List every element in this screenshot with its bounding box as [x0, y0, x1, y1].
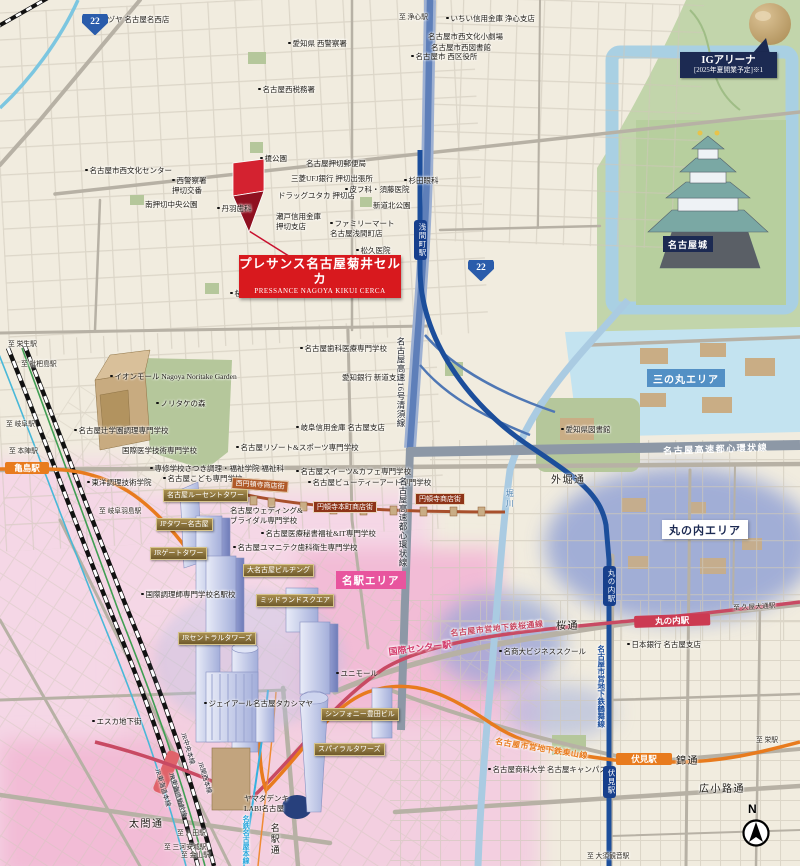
dest-hisaya-odori: 至 久屋大通駅	[733, 603, 776, 614]
rail-chuo: JR中央本線	[178, 732, 196, 766]
poi-seto-shinkin: 瀬戸信用金庫 押切支店	[276, 212, 321, 232]
nagoya-castle-label: 名古屋城	[663, 236, 713, 252]
dest-kanayama: 至 金山駅	[181, 852, 210, 861]
poi-intl-medical-college: 国際医学技術専門学校	[122, 446, 197, 456]
line-sakuradori: 名古屋市営地下鉄桜通線	[450, 619, 544, 639]
line-tsurumai-v: 名古屋市営地下鉄鶴舞線	[596, 645, 606, 728]
area-label-meieki: 名駅エリア	[336, 571, 406, 589]
poi-jr-takashimaya: ジェイアール名古屋タカシマヤ	[204, 699, 313, 709]
poi-nagoya-univ-commerce: 名古屋商科大学 名古屋キャンパス	[488, 765, 607, 775]
hwy-kiyosu-v: 名古屋高速16号清須線	[395, 337, 406, 428]
poi-toyo-chori: 東洋調理技術学院	[87, 478, 152, 488]
bldg-jp-tower: JPタワー名古屋	[156, 518, 213, 531]
poi-nishi-police: 愛知県 西警察署	[288, 39, 347, 49]
shotengai-endoji: 円頓寺商店街	[415, 493, 465, 505]
poi-unimall: ユニモール	[336, 669, 378, 679]
bldg-dai-nagoya: 大名古屋ビルヂング	[243, 564, 314, 577]
poi-beauty-art-college: 名古屋ビューティーアート専門学校	[308, 478, 431, 488]
road-hirokoji: 広小路通	[699, 783, 745, 796]
station-kamejima: 亀島駅	[5, 462, 49, 474]
poi-satsuki-college: 専修学校さつき調理・福祉学院 福祉科	[150, 464, 284, 474]
map-canvas: ヨシヅヤ 名古屋名西店愛知県 西警察署名古屋西税務署至 浄心駅いちい信用金庫 浄…	[0, 0, 800, 866]
station-kokusai-center: 国際センター駅	[388, 639, 452, 658]
property-name-en: PRESSANCE NAGOYA KIKUI CERCA	[239, 287, 401, 295]
poi-aichi-library: 愛知県図書館	[561, 425, 611, 435]
poi-minami-oshikiri-park: 南押切中央公園	[145, 200, 198, 210]
poi-mufg-oshikiri: 三菱UFJ銀行 押切出張所	[291, 174, 373, 184]
road-meieki-v: 名駅通	[268, 823, 280, 856]
poi-niwa-dental: 丹羽歯科	[217, 204, 252, 214]
station-asamacho-v: 浅間町駅	[414, 220, 427, 260]
property-label: プレサンス名古屋菊井セルカ PRESSANCE NAGOYA KIKUI CER…	[239, 255, 401, 298]
bldg-jr-gate-tower: JRゲートタワー	[150, 547, 207, 560]
poi-ichii-shinkin: いちい信用金庫 浄心支店	[446, 14, 535, 24]
dest-biwajima: 至 枇杷島駅	[21, 361, 57, 370]
poi-noritake-garden: ノリタケの森	[156, 399, 206, 409]
bldg-jr-central-towers: JRセントラルタワーズ	[178, 632, 256, 645]
poi-esca: エスカ地下街	[92, 717, 142, 727]
dest-hatta: 至 八田駅	[177, 830, 206, 839]
dest-osu-kannon: 至 大須観音駅	[587, 853, 629, 862]
poi-nishi-theater: 名古屋市西文化小劇場	[428, 32, 503, 42]
station-marunouchi-tsurumai-v: 丸の内駅	[603, 566, 616, 606]
dest-sako: 至 栄生駅	[8, 341, 37, 350]
poi-sweets-cafe-college: 名古屋スイーツ&カフェ専門学校	[296, 467, 411, 477]
line-higashiyama: 名古屋市営地下鉄東山線	[494, 737, 588, 762]
poi-humanitec-college: 名古屋ユマニテク歯科衛生専門学校	[233, 543, 358, 553]
dest-joshin: 至 浄心駅	[399, 14, 428, 23]
bldg-midland-square: ミッドランドスクエア	[256, 594, 334, 607]
poi-familymart-asamacho: ファミリーマート 名古屋浅間町店	[330, 219, 395, 239]
hwy-loop-v: 名古屋高速都心環状線	[397, 477, 408, 567]
road-sotobori: 外堀通	[551, 474, 586, 487]
ig-arena-name: IGアリーナ	[680, 54, 777, 67]
property-name: プレサンス名古屋菊井セルカ	[239, 257, 401, 287]
poi-wedding-college: 名古屋ウェディング& ブライダル専門学校	[230, 506, 303, 526]
area-label-marunouchi: 丸の内エリア	[662, 520, 748, 539]
area-label-sannomaru: 三の丸エリア	[647, 369, 725, 387]
poi-enoki-park: 榎公園	[260, 154, 287, 164]
poi-hifuka-sudo: 皮フ科・須藤医院	[345, 185, 410, 195]
road-sakura: 桜通	[556, 620, 579, 633]
ig-arena-label: IGアリーナ [2025年夏開業予定]※1	[680, 52, 777, 78]
poi-bank-of-japan: 日本銀行 名古屋支店	[627, 640, 701, 650]
bldg-lucent-tower: 名古屋ルーセントタワー	[163, 489, 248, 502]
poi-oshikiri-post: 名古屋押切郵便局	[306, 159, 366, 169]
poi-yamada-labi: ヤマダデンキ LABI名古屋	[244, 794, 289, 814]
poi-dental-medical-college: 名古屋歯科医療専門学校	[300, 344, 387, 354]
bldg-symphony-toyota: シンフォニー豊田ビル	[321, 708, 399, 721]
poi-resort-sports-college: 名古屋リゾート&スポーツ専門学校	[236, 443, 359, 453]
road-taiko: 太閤通	[129, 818, 164, 831]
poi-tsuji-college: 名古屋辻学園調理専門学校	[74, 426, 169, 436]
poi-gifu-shinkin: 岐阜信用金庫 名古屋支店	[296, 423, 385, 433]
compass-north-label: N	[748, 802, 757, 816]
station-fushimi-tsurumai-v: 伏見駅	[603, 766, 616, 798]
poi-drug-yutaka: ドラッグユタカ 押切店	[278, 191, 355, 201]
line-meitetsu-v: 名鉄名古屋本線	[241, 815, 250, 864]
poi-meisho-business-school: 名商大ビジネススクール	[499, 647, 586, 657]
poi-aeon-noritake: イオンモール Nagoya Noritake Garden	[110, 372, 237, 382]
poi-shindo-kita-park: 新道北公園	[373, 201, 411, 211]
map-labels-layer: ヨシヅヤ 名古屋名西店愛知県 西警察署名古屋西税務署至 浄心駅いちい信用金庫 浄…	[0, 0, 800, 866]
hwy-loop-h: 名古屋高速都心環状線	[663, 442, 768, 457]
river-horikawa: 堀川	[504, 489, 514, 509]
station-fushimi: 伏見駅	[616, 753, 672, 765]
dest-honjin: 至 本陣駅	[9, 448, 38, 457]
poi-nishi-ward-office: 名古屋市 西区役所	[411, 52, 477, 62]
station-marunouchi-sakuradori: 丸の内駅	[634, 613, 710, 628]
poi-iryo-hisho-college: 名古屋医療秘書福祉&IT専門学校	[261, 529, 376, 539]
dest-gifuhashima: 至 岐阜羽島駅	[99, 508, 141, 517]
poi-oshikiri-koban: 西警察署 押切交番	[172, 176, 207, 196]
poi-kokusai-chorishi: 国際調理師専門学校名駅校	[141, 590, 236, 600]
bldg-spiral-towers: スパイラルタワーズ	[314, 743, 385, 756]
road-nishiki: 錦通	[676, 755, 699, 768]
dest-gifu: 至 岐阜駅	[6, 421, 35, 430]
poi-nishi-culture-center: 名古屋市西文化センター	[85, 166, 172, 176]
poi-nishi-tax: 名古屋西税務署	[258, 85, 315, 95]
ig-arena-note: [2025年夏開業予定]※1	[680, 67, 777, 75]
rail-kansai: JR関西本線	[195, 761, 213, 795]
rail-shinkansen: JR東海道新幹線	[166, 772, 187, 818]
shotengai-endoji-honmachi: 円頓寺本町商店街	[313, 501, 377, 513]
dest-sakae: 至 栄駅	[756, 737, 778, 746]
